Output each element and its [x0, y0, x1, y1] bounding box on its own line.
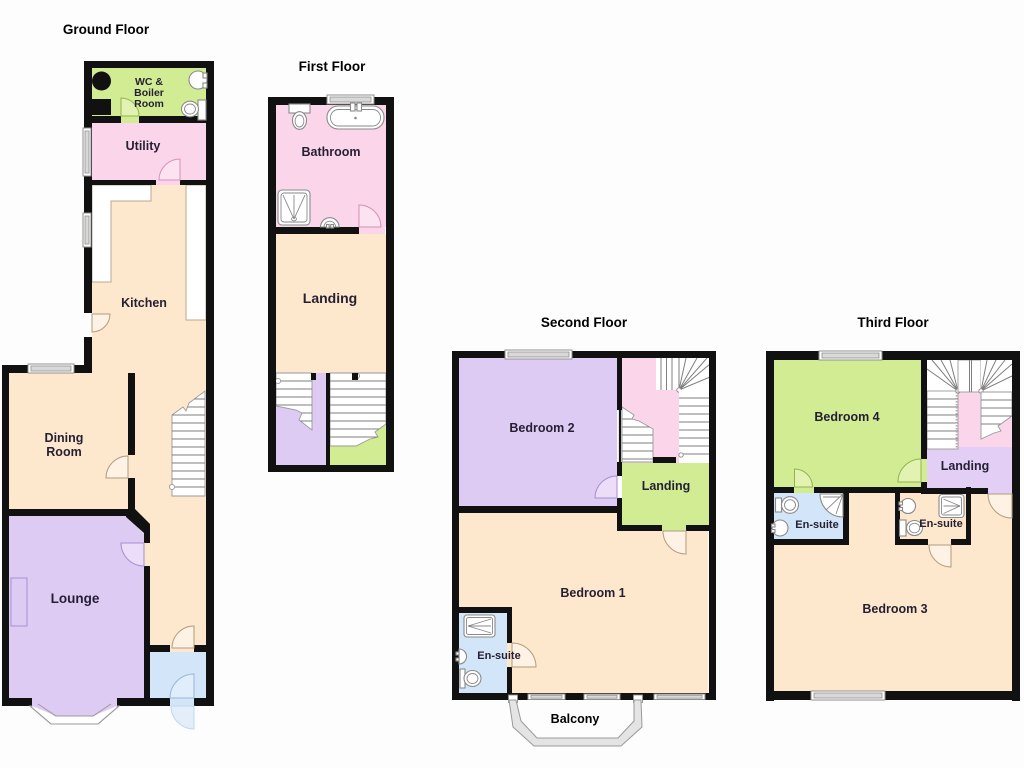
- svg-text:Third Floor: Third Floor: [857, 315, 929, 330]
- svg-text:Landing: Landing: [941, 459, 990, 473]
- svg-text:Landing: Landing: [303, 290, 357, 306]
- svg-text:Balcony: Balcony: [551, 712, 600, 726]
- svg-text:Kitchen: Kitchen: [121, 296, 167, 310]
- svg-text:En-suite: En-suite: [477, 650, 520, 662]
- svg-text:Bedroom 3: Bedroom 3: [862, 602, 927, 616]
- svg-text:Bedroom 4: Bedroom 4: [814, 410, 879, 424]
- svg-text:Room: Room: [134, 98, 164, 110]
- svg-text:Dining: Dining: [45, 431, 84, 445]
- svg-text:Second Floor: Second Floor: [541, 315, 628, 330]
- svg-text:First Floor: First Floor: [299, 59, 366, 74]
- svg-text:Bathroom: Bathroom: [301, 145, 360, 159]
- svg-text:En-suite: En-suite: [795, 519, 838, 531]
- svg-text:Landing: Landing: [642, 479, 691, 493]
- svg-text:En-suite: En-suite: [919, 518, 962, 530]
- svg-text:Bedroom 2: Bedroom 2: [509, 421, 574, 435]
- svg-text:Bedroom 1: Bedroom 1: [560, 586, 625, 600]
- svg-text:Utility: Utility: [126, 139, 161, 153]
- svg-text:Room: Room: [46, 445, 81, 459]
- svg-text:Lounge: Lounge: [51, 591, 100, 606]
- svg-text:Ground Floor: Ground Floor: [63, 22, 150, 37]
